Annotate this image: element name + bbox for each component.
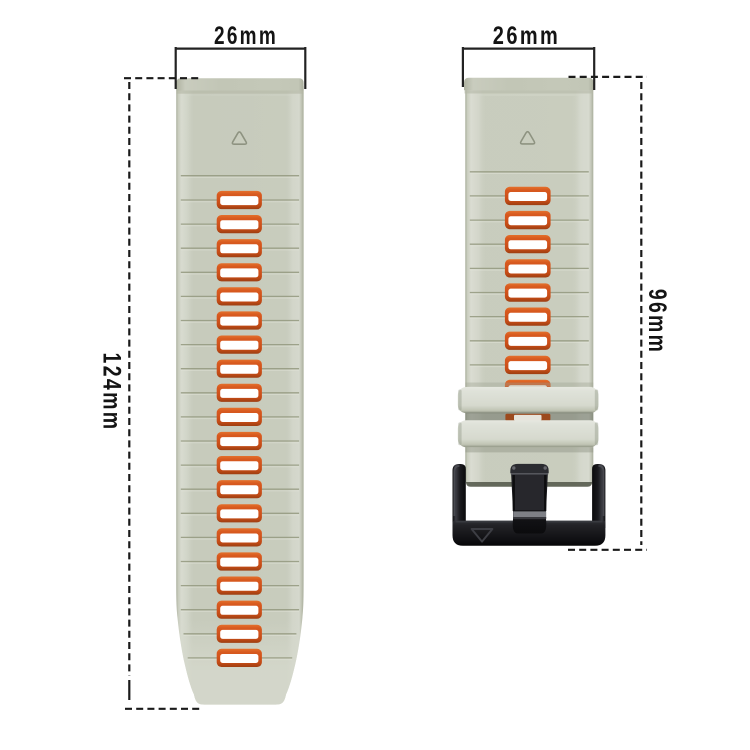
- svg-text:26mm: 26mm: [493, 22, 560, 50]
- svg-text:96mm: 96mm: [643, 289, 671, 354]
- svg-text:26mm: 26mm: [214, 21, 278, 49]
- svg-text:124mm: 124mm: [98, 353, 126, 432]
